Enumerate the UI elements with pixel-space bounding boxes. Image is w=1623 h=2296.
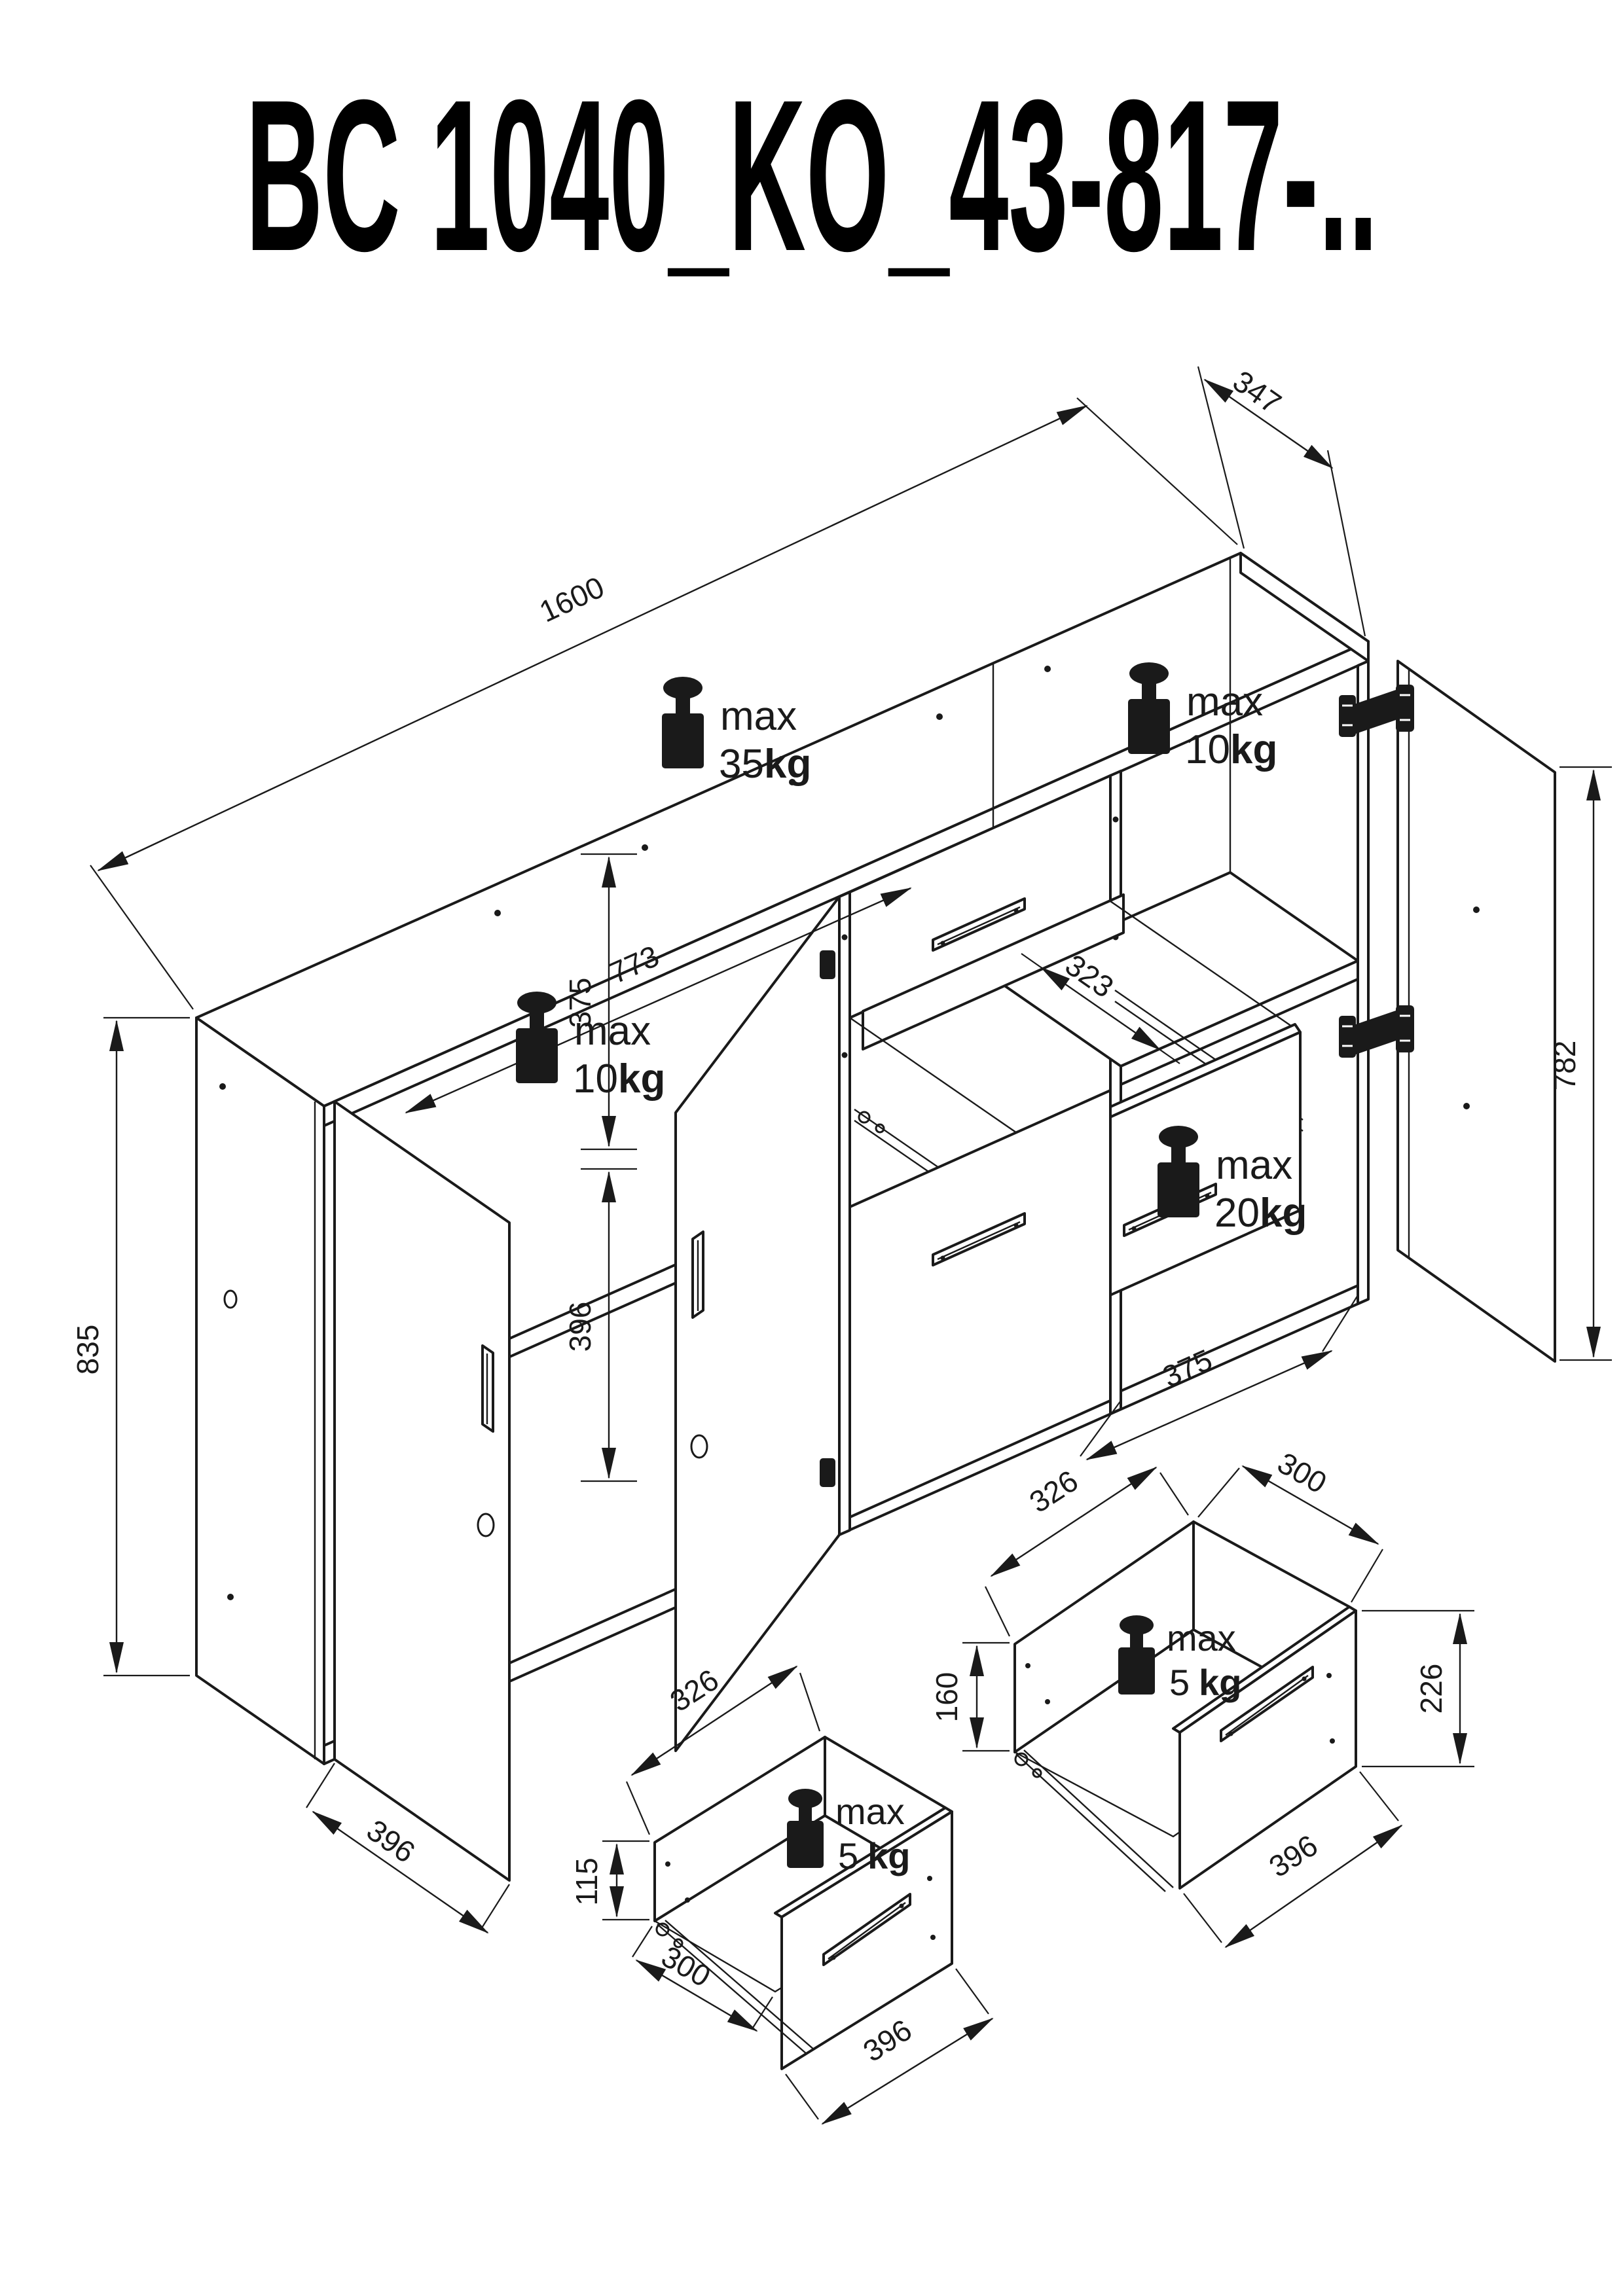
left-door-panel [335, 1102, 509, 1880]
handle-screw [900, 1904, 904, 1909]
hinge-icon [820, 1458, 835, 1487]
detail-slide-rail [1016, 1754, 1165, 1892]
dim-label-detail-side-height: 160 [930, 1672, 964, 1723]
load-bottom-right-value: 20kg [1214, 1191, 1307, 1236]
drawer-detail-lower: 326 115 300 396 max 5 [570, 1662, 993, 2124]
middle-door-open [676, 897, 839, 1751]
door-hole [1463, 1103, 1470, 1109]
cam-hole [494, 910, 501, 916]
cam-hole [936, 713, 943, 720]
divider-hole [1113, 817, 1119, 823]
detail-hole [930, 1935, 936, 1940]
cam-hole [1044, 666, 1051, 672]
dim-label-detail-front-height: 226 [1414, 1664, 1448, 1714]
load-bottom-right-label: max [1216, 1143, 1292, 1188]
handle-screw [831, 1956, 836, 1960]
weight-icon [516, 992, 558, 1083]
dim-label-lower-inner-height: 396 [563, 1302, 597, 1352]
dim-label-detail-inner-width: 300 [656, 1939, 716, 1993]
divider-right-front-edge [1110, 771, 1121, 1414]
handle-screw [1014, 1223, 1019, 1228]
dim-label-height: 835 [71, 1325, 105, 1375]
drawer-detail-upper: 326 300 160 226 396 [930, 1445, 1474, 1947]
dim-label-width: 1600 [534, 569, 610, 628]
detail-hole [1330, 1738, 1335, 1744]
left-door-open [335, 1102, 509, 1880]
right-door-open [1339, 661, 1555, 1361]
hinge-lower [1339, 1005, 1414, 1058]
dim-right-door-height-782: 782 [1548, 767, 1612, 1360]
bottom-drawer-closed [850, 1090, 1110, 1517]
divider-hole [842, 935, 848, 941]
dim-label-left-door-width: 396 [361, 1813, 422, 1870]
dim-label-detail-depth: 326 [1023, 1463, 1084, 1519]
dim-label-right-door-height: 782 [1548, 1041, 1582, 1091]
weight-icon [1158, 1126, 1199, 1217]
dim-height-835: 835 [71, 1018, 190, 1676]
load-left-shelf-value: 10kg [573, 1056, 665, 1102]
detail-slide-rail [1024, 1750, 1173, 1888]
hinge-icon [820, 950, 835, 979]
detail-hole [1025, 1663, 1030, 1668]
load-top-value: 35kg [719, 742, 811, 787]
dim-detail-upper-front-height-226: 226 [1362, 1611, 1474, 1767]
load-right-shelf-label: max [1186, 679, 1263, 725]
drawing-sheet: BC 1040_KO_43-817-.. [0, 0, 1623, 2296]
load-detail-upper-label: max [1167, 1617, 1236, 1659]
load-top-label: max [720, 694, 797, 739]
dim-label-detail-side-height: 115 [570, 1857, 604, 1905]
load-top: max 35kg [662, 677, 811, 787]
load-detail-lower-label: max [835, 1791, 905, 1832]
rail-roller [859, 1112, 869, 1122]
detail-hole [1326, 1673, 1332, 1678]
left-side-panel [196, 1018, 324, 1764]
load-detail-lower-value: 5kg [838, 1835, 911, 1876]
load-detail-upper: max 5kg [1118, 1615, 1242, 1703]
middle-door-panel [676, 897, 839, 1751]
weight-icon [1128, 662, 1170, 754]
weight-icon [662, 677, 704, 768]
detail-hole [685, 1897, 690, 1903]
weight-icon [1118, 1615, 1155, 1695]
load-right-shelf-value: 10kg [1185, 727, 1277, 772]
technical-drawing: BC 1040_KO_43-817-.. [0, 0, 1623, 2296]
side-hole [219, 1083, 226, 1090]
dim-detail-upper-side-height-160: 160 [930, 1643, 1010, 1751]
page-title: BC 1040_KO_43-817-.. [246, 54, 1378, 296]
dim-lower-inner-height-396: 396 [563, 1169, 637, 1481]
door-hole [1473, 906, 1480, 913]
detail-hole [927, 1876, 932, 1881]
dim-label-depth: 347 [1227, 364, 1288, 421]
dim-label-detail-front-width: 396 [1263, 1828, 1324, 1884]
right-side-panel-front-edge [1358, 661, 1368, 1304]
divider-left-front-edge [839, 892, 850, 1535]
handle-screw [941, 941, 945, 946]
load-left-shelf: max 10kg [516, 992, 665, 1102]
load-left-shelf-label: max [574, 1009, 651, 1054]
bottom-drawer-front [850, 1090, 1110, 1517]
detail-hole [1045, 1699, 1050, 1704]
right-door-panel [1398, 661, 1555, 1361]
hinge-upper [1339, 685, 1414, 737]
dim-label-detail-inner-width: 300 [1272, 1445, 1332, 1499]
divider-hole [842, 1052, 848, 1058]
weight-icon [787, 1789, 824, 1868]
handle-screw [1014, 908, 1019, 913]
dim-label-detail-front-width: 396 [857, 2013, 918, 2068]
detail-hole [665, 1861, 670, 1867]
handle-screw [1205, 1194, 1210, 1198]
handle-screw [941, 1256, 945, 1261]
handle-screw [1229, 1732, 1233, 1736]
handle-screw [1302, 1677, 1307, 1681]
dim-detail-lower-side-height-115: 115 [570, 1841, 649, 1920]
drawer-side-top-edge [850, 1018, 1040, 1149]
cam-hole [642, 844, 648, 851]
load-detail-upper-value: 5kg [1169, 1662, 1242, 1703]
handle-screw [1132, 1227, 1137, 1231]
side-hole [227, 1594, 234, 1600]
